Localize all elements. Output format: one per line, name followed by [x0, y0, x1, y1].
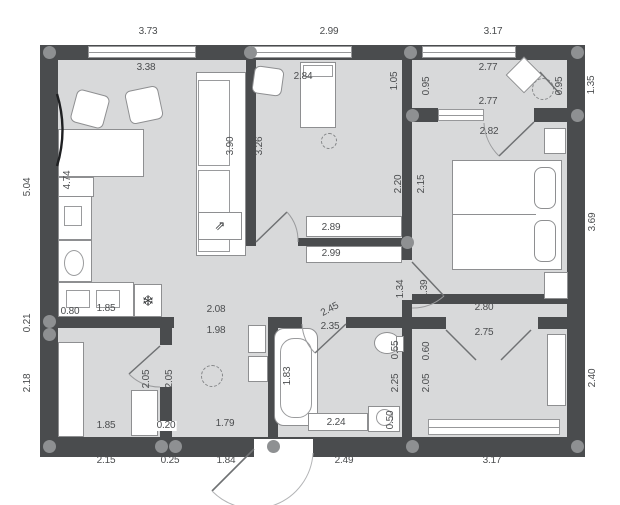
- dimension-label-dressing-room: 0.60: [422, 342, 432, 361]
- dressing-door-leaf-left: [446, 330, 476, 360]
- dimension-label-corridor: 1.34: [396, 280, 406, 299]
- dimension-label-exterior-top: 3.73: [139, 27, 158, 37]
- dimension-label-bedroom: 2.82: [480, 127, 499, 137]
- dimension-label-kitchen: 1.85: [97, 304, 116, 314]
- structural-column: [267, 440, 280, 453]
- bathroom-door-arc: [302, 324, 315, 353]
- dimension-label-small-room: 2.05: [142, 370, 152, 389]
- dimension-label-exterior-bottom: 1.84: [217, 456, 236, 466]
- structural-column: [155, 440, 168, 453]
- dimension-label-hallway: 1.98: [207, 326, 226, 336]
- dimension-label-dressing-room: 2.05: [422, 374, 432, 393]
- dimension-label-exterior-left: 5.04: [23, 178, 33, 197]
- balcony-door-leaf: [499, 122, 534, 156]
- structural-column: [571, 440, 584, 453]
- dimension-label-middle-room: 2.84: [294, 72, 313, 82]
- dimension-label-small-room: 1.85: [97, 421, 116, 431]
- dimension-label-middle-room: 3.26: [255, 137, 265, 156]
- structural-column: [571, 46, 584, 59]
- structural-column: [169, 440, 182, 453]
- structural-column: [43, 315, 56, 328]
- structural-column: [43, 328, 56, 341]
- dimension-label-exterior-bottom: 2.49: [335, 456, 354, 466]
- dimension-label-kitchen: 0.80: [61, 307, 80, 317]
- dimension-label-exterior-right: 2.40: [588, 369, 598, 388]
- dimension-label-balcony: 2.77: [479, 63, 498, 73]
- structural-column: [43, 46, 56, 59]
- dimension-label-middle-room-wardrobe: 2.89: [322, 223, 341, 233]
- dimension-label-corridor: 2.08: [207, 305, 226, 315]
- dimension-label-living-room: 3.38: [137, 63, 156, 73]
- dimension-label-bedroom: 1.39: [420, 280, 430, 299]
- dimension-label-bathroom: 2.24: [327, 418, 346, 428]
- structural-column: [406, 440, 419, 453]
- structural-column: [401, 236, 414, 249]
- dimension-label-exterior-bottom: 3.17: [483, 456, 502, 466]
- dimension-label-balcony: 0.95: [555, 77, 565, 96]
- dimension-label-exterior-left: 0.21: [23, 314, 33, 333]
- dimension-label-hallway: 2.05: [165, 370, 175, 389]
- dimension-label-balcony: 2.77: [479, 97, 498, 107]
- dimension-label-hall-wardrobe: 2.99: [322, 249, 341, 259]
- structural-column: [406, 109, 419, 122]
- dimension-label-exterior-bottom: 2.15: [97, 456, 116, 466]
- dimension-label-middle-room: 1.05: [390, 72, 400, 91]
- dimension-label-bathroom: 2.25: [391, 374, 401, 393]
- floor-plan-canvas: ❄ ⇗ 3.732.993.175.040.212.181.353.692.40…: [0, 0, 620, 505]
- middle-room-door-leaf: [256, 212, 287, 242]
- dimension-label-bedroom: 2.15: [417, 175, 427, 194]
- dimension-label-exterior-top: 3.17: [484, 27, 503, 37]
- dimension-label-exterior-bottom: 0.25: [161, 456, 180, 466]
- structural-column: [244, 46, 257, 59]
- middle-room-door-arc: [287, 212, 298, 242]
- dimension-label-exterior-right: 1.35: [587, 76, 597, 95]
- dimension-label-small-room: 0.20: [156, 421, 177, 431]
- dimension-label-bathroom: 2.35: [321, 322, 340, 332]
- dressing-door-leaf-right: [501, 330, 531, 360]
- dimension-label-dressing-room: 2.75: [475, 328, 494, 338]
- dimension-label-bathroom: 1.83: [283, 367, 293, 386]
- dimension-label-exterior-left: 2.18: [23, 374, 33, 393]
- dimension-label-bathroom: 0.50: [386, 411, 396, 430]
- dimension-label-living-room: 4.74: [63, 171, 73, 190]
- curtain-arc: [57, 94, 63, 166]
- dimension-label-exterior-top: 2.99: [320, 27, 339, 37]
- structural-column: [43, 440, 56, 453]
- dimension-label-hallway: 1.79: [216, 419, 235, 429]
- dimension-label-middle-room: 2.20: [394, 175, 404, 194]
- structural-column: [404, 46, 417, 59]
- dimension-label-bathroom: 0.55: [391, 341, 401, 360]
- dimension-label-exterior-right: 3.69: [588, 213, 598, 232]
- dimension-label-balcony: 0.95: [422, 77, 432, 96]
- structural-column: [571, 109, 584, 122]
- dimension-label-living-room: 3.90: [226, 137, 236, 156]
- dimension-label-corridor: 2.80: [475, 303, 494, 313]
